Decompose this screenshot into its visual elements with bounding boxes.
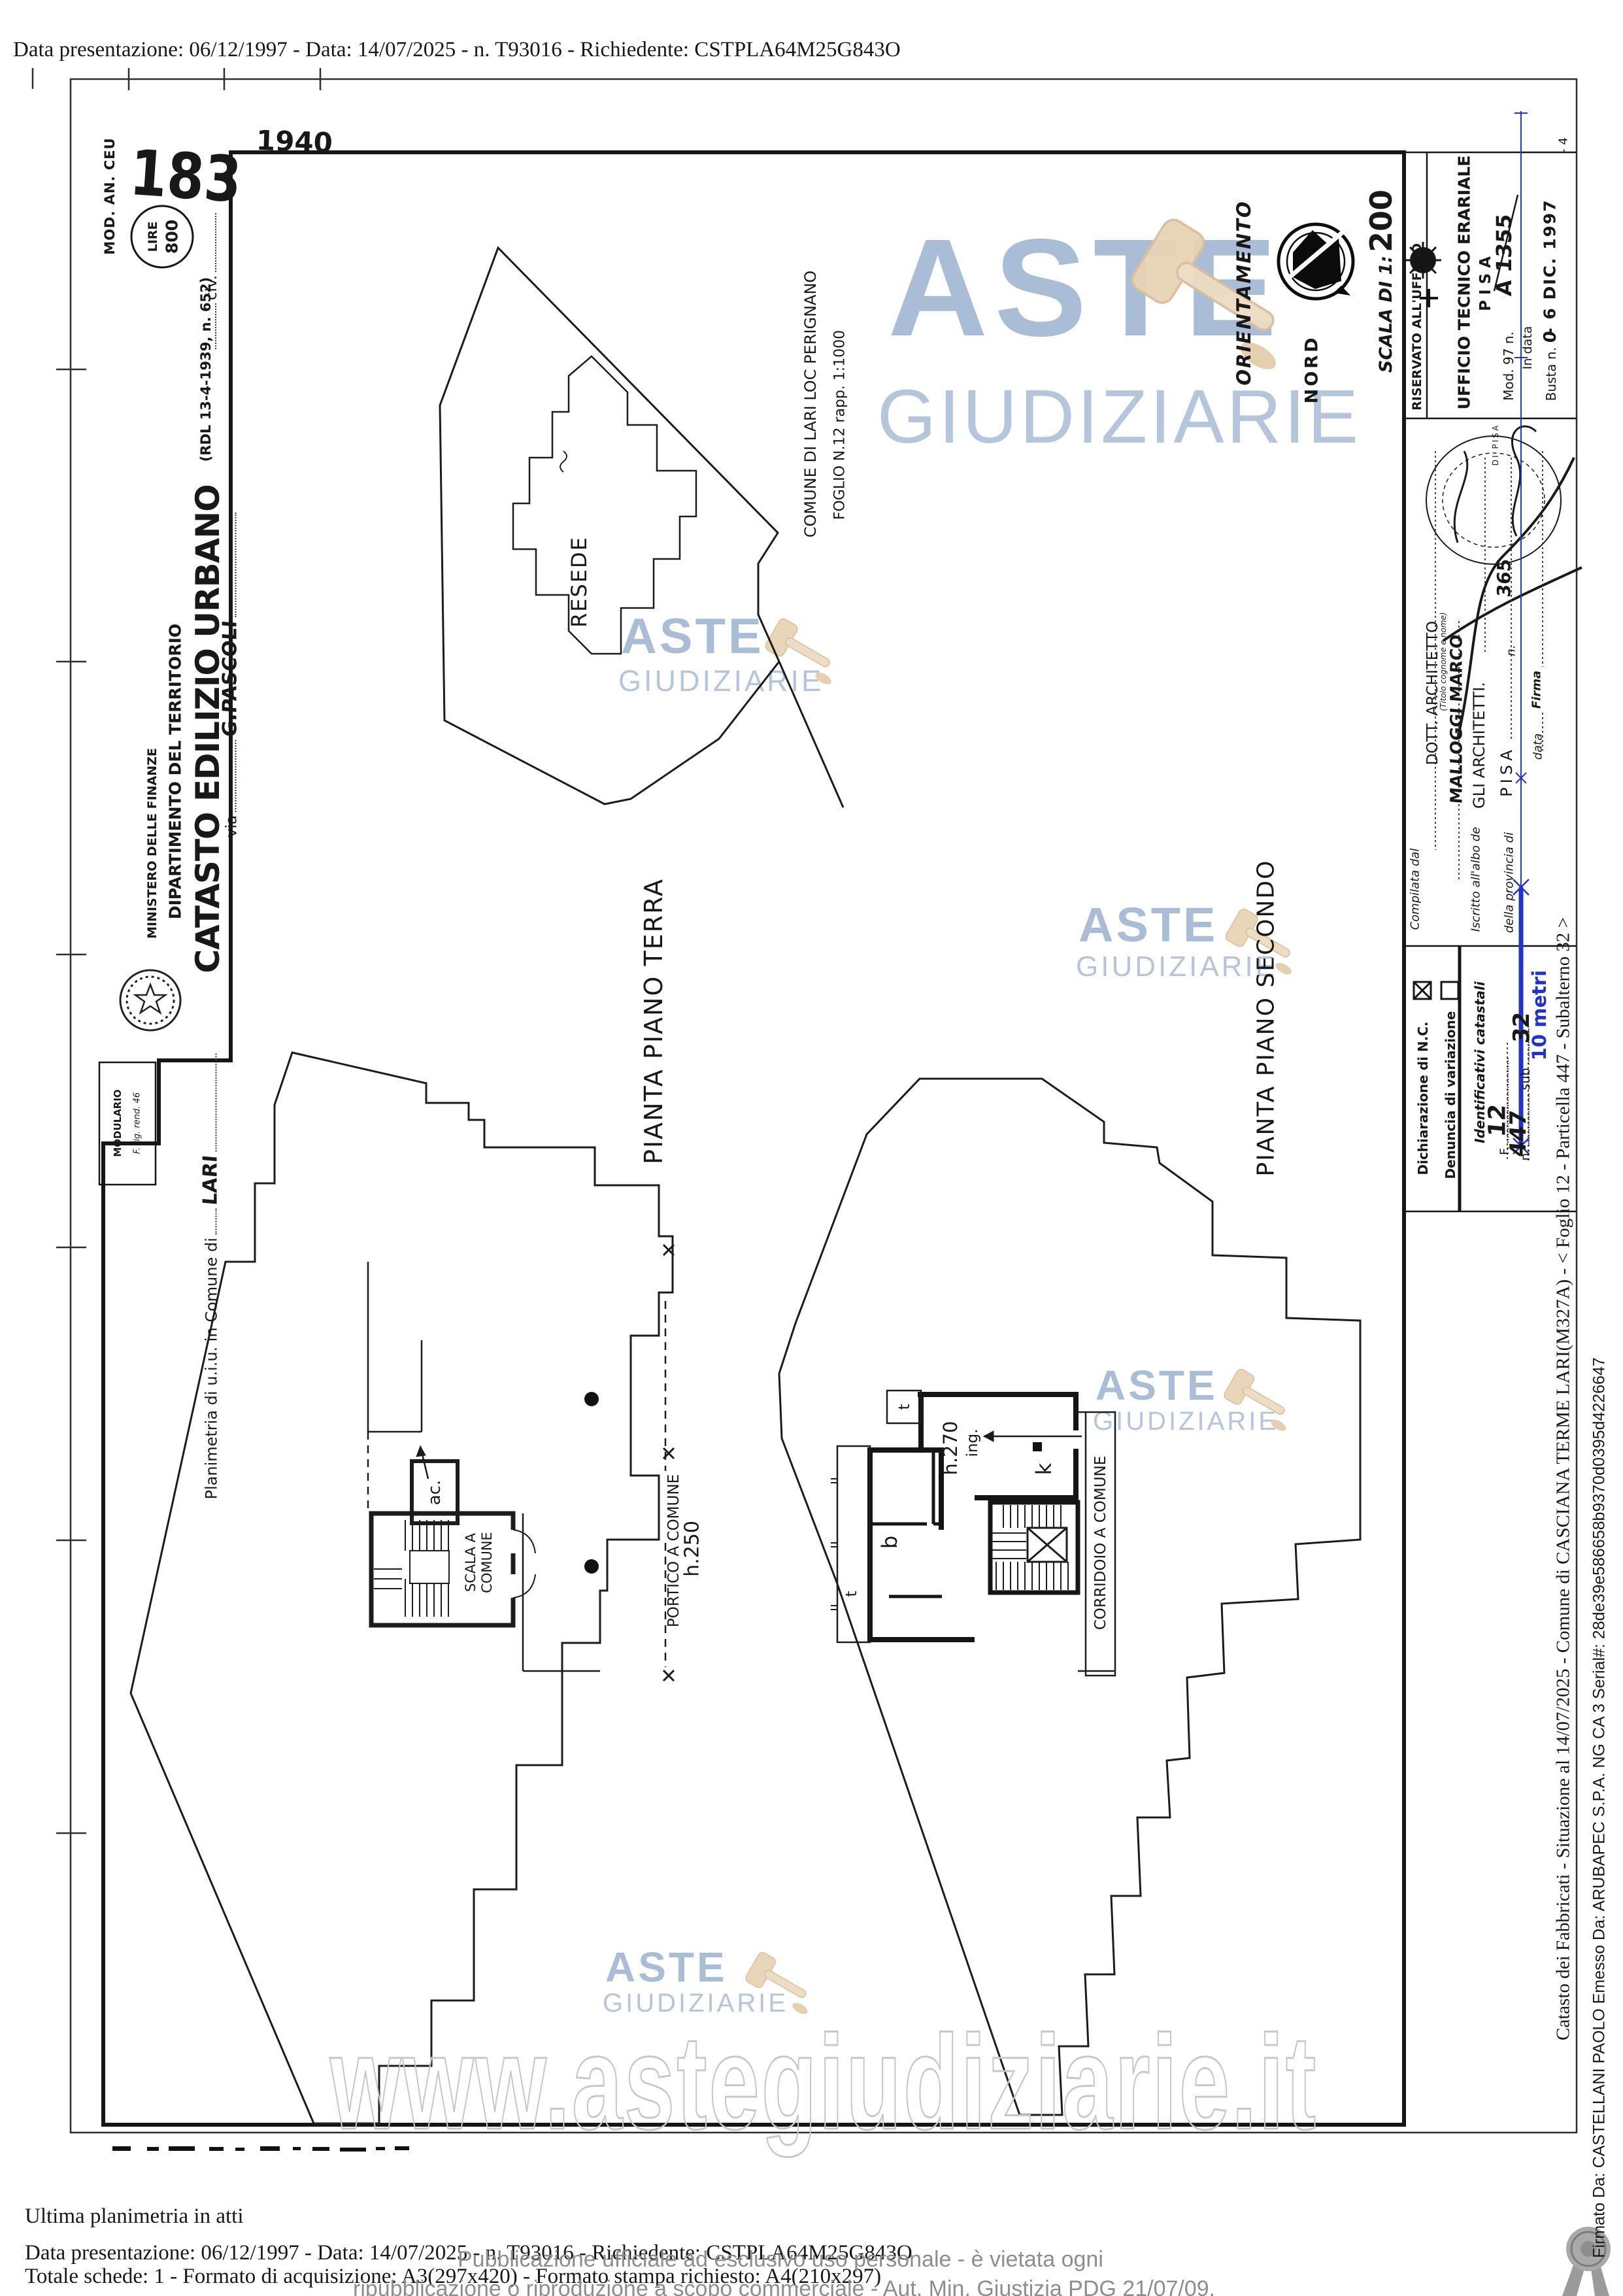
scala-comune-label1: SCALA A [463, 1533, 478, 1592]
dipartimento-line: DIPARTIMENTO DEL TERRITORIO [166, 624, 185, 919]
ministero-line: MINISTERO DELLE FINANZE [145, 748, 159, 939]
state-emblem-icon [120, 970, 180, 1030]
modulario-label: MODULARIO [112, 1089, 124, 1156]
portico-label: PORTICO A COMUNE [665, 1474, 682, 1627]
modulario-box [99, 1062, 156, 1185]
titolo-piano-terra: PIANTA PIANO TERRA [639, 878, 668, 1164]
footer-line1: Ultima planimetria in atti [25, 2204, 244, 2229]
via-value: G.PASCOLI [219, 619, 242, 737]
in-data-label: In data [1520, 326, 1535, 369]
provincia-label: della provincia di [1503, 832, 1516, 933]
lire-value: 800 [163, 220, 182, 254]
compilata-label: Compilata dal [1409, 849, 1422, 930]
denuncia-label: Denuncia di variazione [1443, 1011, 1458, 1179]
side-firmato-line: Firmato Da: CASTELLANI PAOLO Emesso Da: … [1590, 1357, 1609, 2258]
comune-value: LARI [199, 1154, 222, 1206]
disclaimer-line2: ripubblicazione o riproduzione a scopo c… [353, 2276, 1215, 2296]
rdl-reference: (RDL 13-4-1939, n. 652) [198, 277, 214, 462]
particella-value: 447 [1505, 1111, 1531, 1157]
data-label: data [1531, 734, 1545, 760]
b-label: b [877, 1536, 902, 1549]
corridoio-label: CORRIDOIO A COMUNE [1092, 1456, 1109, 1630]
riservato-label: RISERVATO ALL'UFFICIO [1410, 243, 1424, 411]
albo-value: GLI ARCHITETTI. [1470, 682, 1488, 809]
disclaimer-line1: Pubblicazione ufficiale ad esclusivo uso… [458, 2247, 1103, 2272]
t-label-2: t [843, 1591, 860, 1596]
provincia-value: PISA [1498, 746, 1516, 797]
handwritten-183: 183 [127, 136, 244, 217]
firma-label: Firma [1530, 671, 1544, 709]
scala-line: SCALA DI 1: 200 [1364, 190, 1399, 373]
comune-lari-line2: FOGLIO N.12 rapp. 1:1000 [832, 330, 848, 520]
date-stamp: - 6 DIC. 1997 [1541, 199, 1560, 334]
modulario-sub: F. rig. rend. 46 [133, 1092, 142, 1154]
margin-note: - 4 [1557, 137, 1571, 153]
watermark-url: www.astegiudiziarie.it [330, 2006, 1318, 2160]
stamp-rim-text: DI PISA [1491, 424, 1500, 465]
albo-n-label: n. [1505, 645, 1518, 656]
scala-comune-label2: COMUNE [479, 1532, 495, 1593]
resede-label: RESEDE [567, 536, 592, 628]
albo-n-value: 365 [1494, 559, 1515, 597]
comune-lari-line1: COMUNE DI LARI LOC PERIGNANO [801, 271, 820, 538]
busta-line: Busta n. 0 [1541, 331, 1560, 401]
misura-annotation: 10 metri [1528, 970, 1550, 1060]
k-label: k [1031, 1463, 1056, 1476]
side-catasto-line: Catasto dei Fabbricati - Situazione al 1… [1553, 917, 1575, 2040]
iscritto-label: Iscritto all'albo de [1469, 827, 1483, 932]
mod97-value: A 1355 [1492, 214, 1516, 296]
planimetria-line: Planimetria di u.i.u. in Comune diLARI [199, 1051, 222, 1500]
ac-label: ac. [425, 1480, 444, 1506]
scanned-cadastral-document: ASTE GIUDIZIARIE ASTE GIUDIZIARIE ASTE G… [0, 0, 1623, 2296]
plan-piano-secondo [779, 1079, 1360, 2115]
portico-h-label: h.250 [681, 1521, 704, 1577]
dichiarazione-nc-label: Dichiarazione di N.C. [1415, 1021, 1431, 1175]
declaration-checkboxes [1414, 982, 1458, 999]
compass-north-icon [1279, 224, 1353, 299]
h270-label: h.270 [939, 1421, 962, 1476]
handwritten-1940: 1940 [256, 124, 333, 159]
compiler-name: MALLOGGI MARCO [1447, 635, 1466, 804]
nord-label: NORD [1302, 335, 1322, 404]
t-label-1: t [896, 1404, 913, 1410]
ing-label: ing. [964, 1429, 981, 1457]
ufficio-tecnico-label: UFFICIO TECNICO ERARIALE [1455, 156, 1474, 410]
titolo-piano-secondo: PIANTA PIANO SECONDO [1253, 860, 1280, 1177]
scala-value: 200 [1364, 190, 1399, 252]
page-header-line: Data presentazione: 06/12/1997 - Data: 1… [13, 38, 901, 62]
mod97-label: Mod. 97 n. [1501, 331, 1516, 401]
lire-label: LIRE [146, 222, 160, 252]
mod-an-ceu-label: MOD. AN. CEU [102, 137, 118, 254]
resede-parcel-map [440, 248, 843, 807]
via-line: viaG.PASCOLI [219, 509, 242, 837]
orientamento-label: ORIENTAMENTO [1233, 200, 1255, 385]
